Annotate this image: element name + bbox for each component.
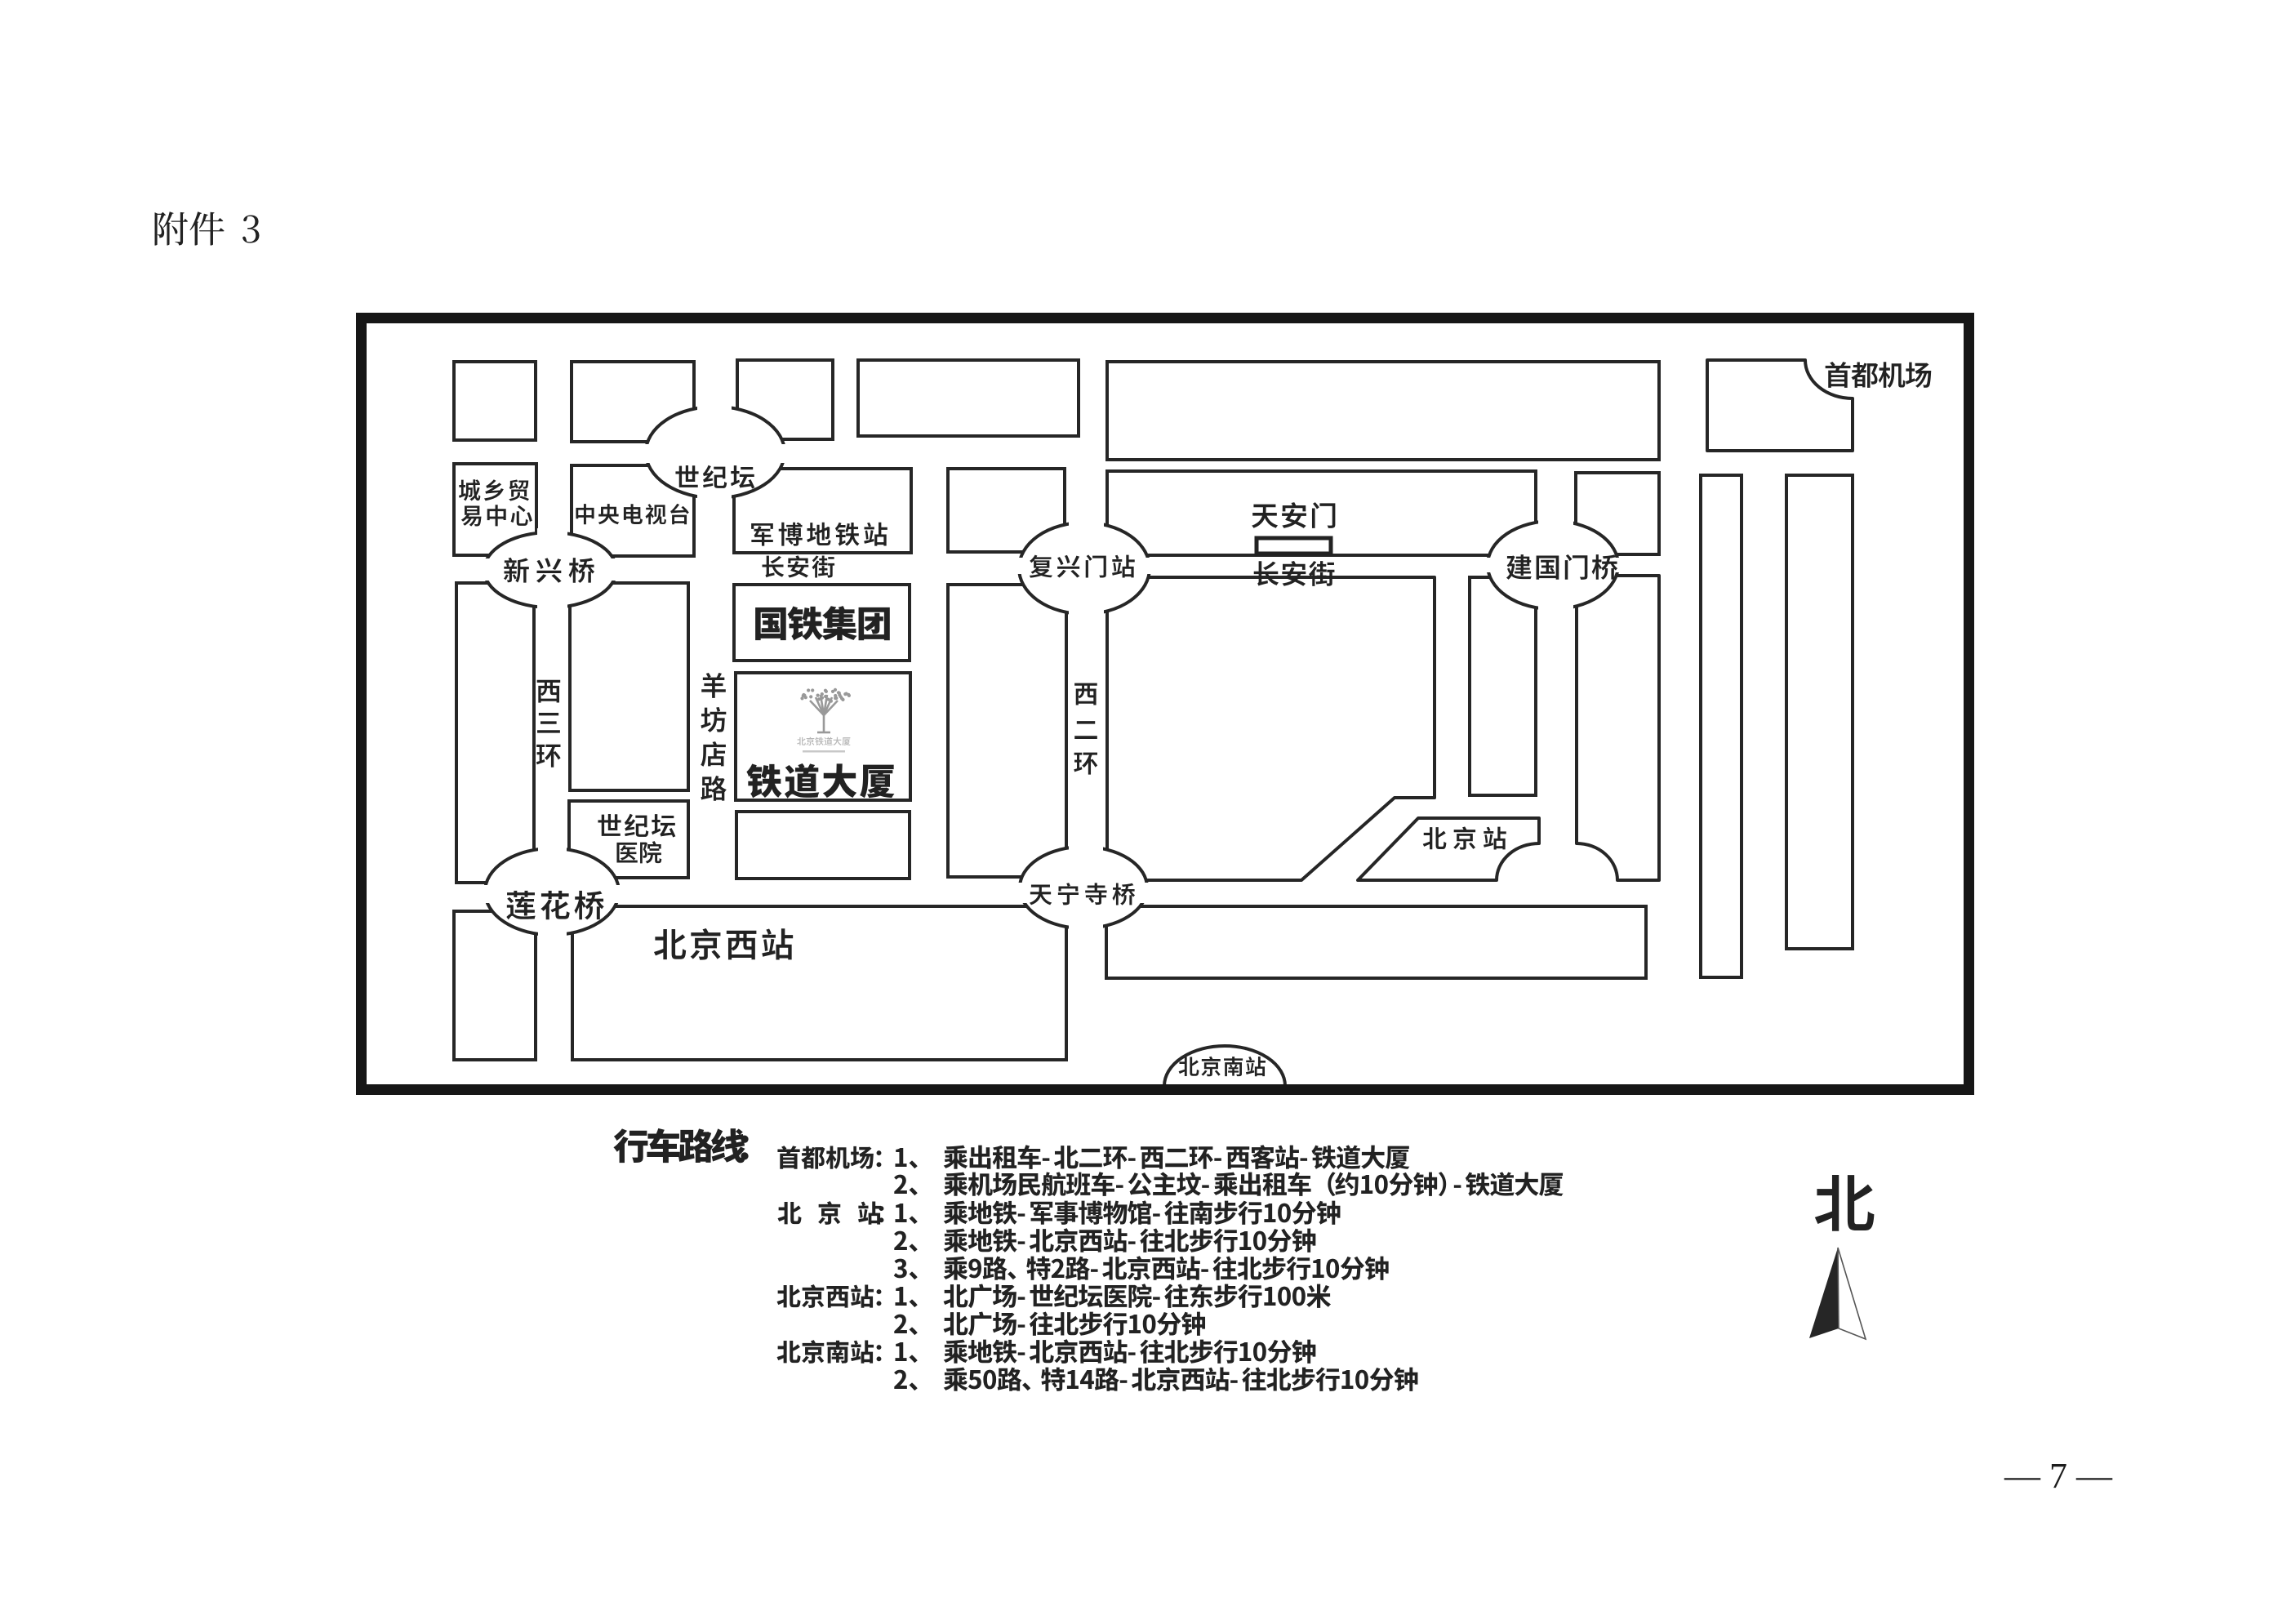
svg-text:— 7 —: — 7 — (2004, 1456, 2113, 1496)
